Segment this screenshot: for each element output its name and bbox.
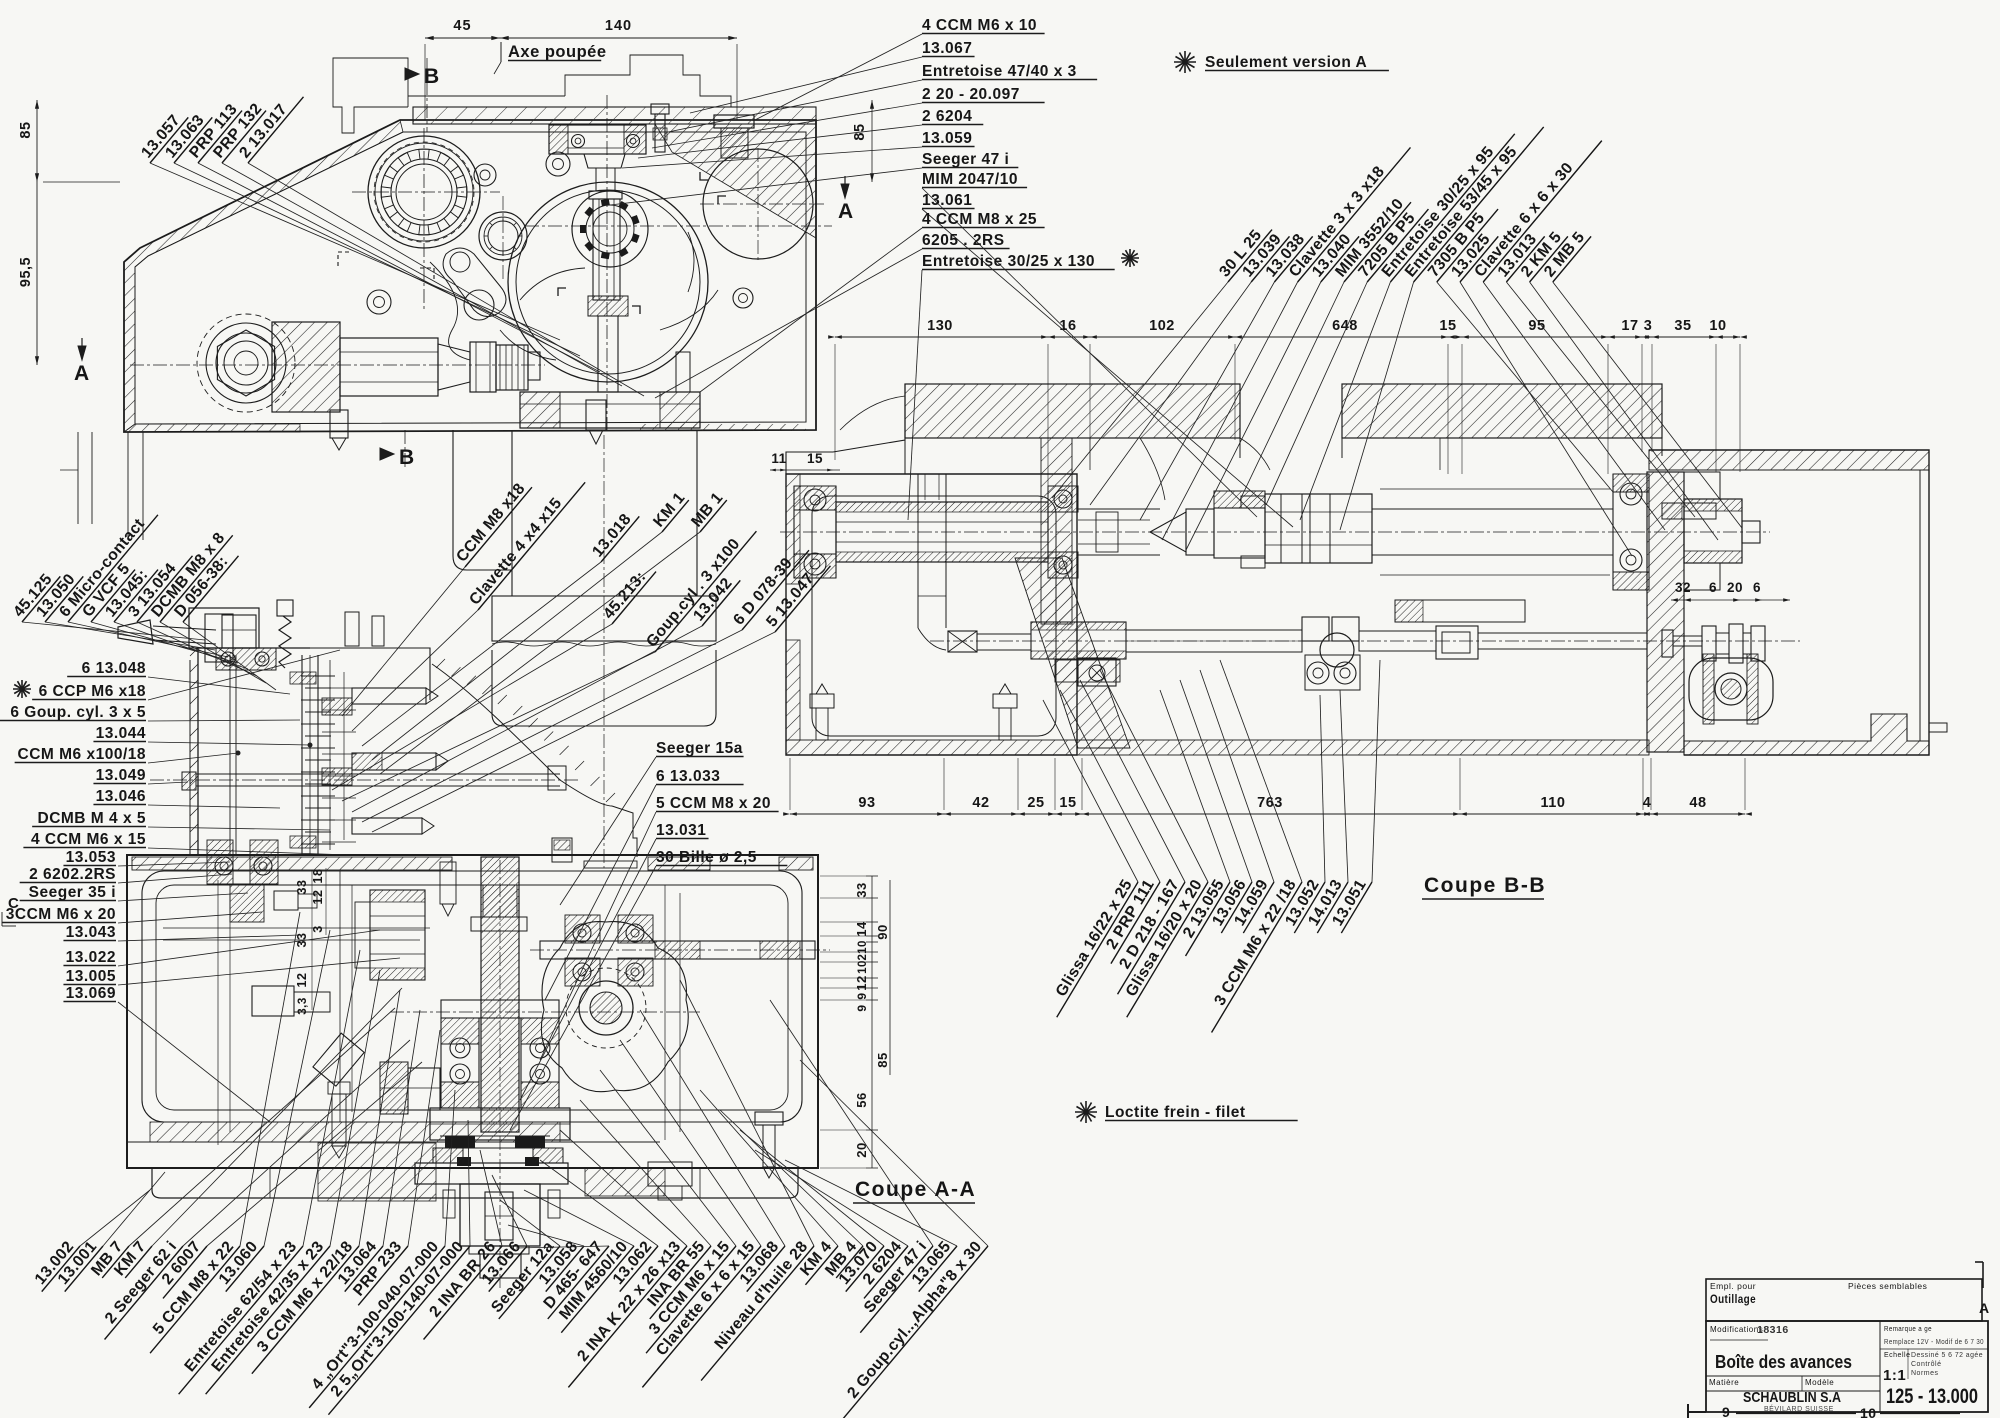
svg-text:B: B bbox=[424, 65, 440, 88]
svg-text:9: 9 bbox=[855, 1004, 869, 1011]
svg-text:13.059: 13.059 bbox=[922, 130, 972, 147]
svg-text:13.046: 13.046 bbox=[96, 788, 146, 805]
svg-text:56: 56 bbox=[854, 1092, 869, 1107]
svg-text:20: 20 bbox=[854, 1142, 869, 1157]
svg-text:33: 33 bbox=[854, 882, 869, 897]
svg-text:Seeger 35 i: Seeger 35 i bbox=[29, 884, 116, 901]
svg-text:Axe poupée: Axe poupée bbox=[508, 43, 607, 61]
svg-text:A: A bbox=[1979, 1300, 1990, 1316]
svg-text:125 - 13.000: 125 - 13.000 bbox=[1886, 1385, 1978, 1408]
svg-text:4: 4 bbox=[1643, 795, 1652, 811]
svg-text:2: 2 bbox=[857, 954, 869, 961]
svg-text:10: 10 bbox=[1709, 318, 1726, 334]
svg-text:20: 20 bbox=[1727, 580, 1743, 595]
svg-text:MIM 2047/10: MIM 2047/10 bbox=[922, 171, 1018, 188]
svg-text:A: A bbox=[838, 200, 854, 223]
svg-text:2 20 - 20.097: 2 20 - 20.097 bbox=[922, 86, 1020, 103]
svg-text:13.067: 13.067 bbox=[922, 40, 972, 57]
svg-text:Contrôlé: Contrôlé bbox=[1911, 1361, 1941, 1368]
svg-text:10: 10 bbox=[1860, 1405, 1877, 1418]
svg-text:25: 25 bbox=[1027, 795, 1044, 811]
svg-text:13.053: 13.053 bbox=[66, 849, 116, 866]
svg-text:5 CCM M8 x 20: 5 CCM M8 x 20 bbox=[656, 795, 771, 812]
svg-text:Coupe B-B: Coupe B-B bbox=[1424, 874, 1546, 897]
svg-text:Outillage: Outillage bbox=[1710, 1292, 1756, 1306]
svg-text:BÉVILARD SUISSE: BÉVILARD SUISSE bbox=[1764, 1404, 1834, 1413]
svg-text:4 CCM M8 x 25: 4 CCM M8 x 25 bbox=[922, 211, 1037, 228]
svg-text:B: B bbox=[399, 446, 415, 469]
svg-text:DCMB M 4 x 5: DCMB M 4 x 5 bbox=[38, 810, 147, 827]
svg-text:6 CCP M6 x18: 6 CCP M6 x18 bbox=[39, 683, 146, 700]
svg-text:6205 . 2RS: 6205 . 2RS bbox=[922, 232, 1005, 249]
svg-text:Normes: Normes bbox=[1911, 1370, 1939, 1377]
svg-text:110: 110 bbox=[1541, 795, 1566, 811]
svg-text:6 13.033: 6 13.033 bbox=[656, 768, 720, 785]
svg-text:Loctite frein - filet: Loctite frein - filet bbox=[1105, 1104, 1246, 1121]
svg-text:48: 48 bbox=[1689, 795, 1706, 811]
svg-text:18316: 18316 bbox=[1757, 1324, 1789, 1336]
svg-text:93: 93 bbox=[858, 795, 875, 811]
svg-text:85: 85 bbox=[18, 121, 34, 138]
svg-text:6: 6 bbox=[1753, 580, 1761, 595]
svg-text:2 6202.2RS: 2 6202.2RS bbox=[29, 866, 116, 883]
svg-text:Entretoise 30/25 x 130: Entretoise 30/25 x 130 bbox=[922, 253, 1095, 270]
svg-text:30 Bille ø 2,5: 30 Bille ø 2,5 bbox=[656, 849, 757, 866]
svg-text:6 Goup. cyl. 3 x 5: 6 Goup. cyl. 3 x 5 bbox=[10, 704, 146, 721]
svg-text:35: 35 bbox=[1674, 318, 1691, 334]
svg-text:Boîte des avances: Boîte des avances bbox=[1715, 1352, 1852, 1372]
svg-text:12: 12 bbox=[854, 975, 869, 990]
svg-text:3,3: 3,3 bbox=[297, 997, 309, 1015]
svg-text:15: 15 bbox=[807, 451, 823, 466]
svg-text:6: 6 bbox=[1709, 580, 1717, 595]
svg-text:13.061: 13.061 bbox=[922, 192, 972, 209]
svg-text:Seeger 15a: Seeger 15a bbox=[656, 740, 743, 757]
svg-text:763: 763 bbox=[1257, 795, 1283, 811]
svg-text:SCHAUBLIN S.A: SCHAUBLIN S.A bbox=[1743, 1389, 1841, 1406]
svg-text:6 13.048: 6 13.048 bbox=[82, 660, 146, 677]
svg-text:13.022: 13.022 bbox=[66, 949, 116, 966]
svg-text:CCM M6 x100/18: CCM M6 x100/18 bbox=[18, 746, 146, 763]
svg-text:13.069: 13.069 bbox=[66, 985, 116, 1002]
svg-text:102: 102 bbox=[1149, 318, 1175, 334]
svg-text:A: A bbox=[74, 362, 90, 385]
svg-text:18: 18 bbox=[311, 869, 325, 884]
svg-text:Coupe A-A: Coupe A-A bbox=[855, 1178, 976, 1201]
svg-text:3CCM M6 x 20: 3CCM M6 x 20 bbox=[6, 906, 116, 923]
svg-text:13.044: 13.044 bbox=[96, 725, 146, 742]
svg-text:Modèle: Modèle bbox=[1805, 1378, 1834, 1387]
svg-text:10: 10 bbox=[857, 960, 869, 974]
svg-text:4 CCM M6 x 10: 4 CCM M6 x 10 bbox=[922, 17, 1037, 34]
svg-text:Seeger 47 i: Seeger 47 i bbox=[922, 151, 1009, 168]
svg-text:3: 3 bbox=[311, 925, 325, 932]
svg-text:85: 85 bbox=[875, 1052, 890, 1067]
svg-text:90: 90 bbox=[875, 924, 890, 939]
svg-text:12: 12 bbox=[311, 890, 325, 905]
svg-text:95,5: 95,5 bbox=[18, 257, 34, 287]
svg-text:4 CCM M6 x 15: 4 CCM M6 x 15 bbox=[31, 831, 146, 848]
svg-text:130: 130 bbox=[927, 318, 953, 334]
svg-text:13.005: 13.005 bbox=[66, 968, 116, 985]
svg-text:Modifications: Modifications bbox=[1710, 1325, 1763, 1334]
svg-text:15: 15 bbox=[1439, 318, 1456, 334]
svg-text:Dessiné 5 6 72 agée: Dessiné 5 6 72 agée bbox=[1911, 1350, 1983, 1359]
svg-text:1:1: 1:1 bbox=[1883, 1367, 1906, 1384]
svg-text:9: 9 bbox=[855, 992, 869, 999]
svg-text:13.031: 13.031 bbox=[656, 822, 706, 839]
svg-text:Entretoise 47/40 x 3: Entretoise 47/40 x 3 bbox=[922, 63, 1077, 80]
svg-text:15: 15 bbox=[1059, 795, 1076, 811]
svg-text:32: 32 bbox=[1675, 580, 1691, 595]
svg-text:42: 42 bbox=[972, 795, 989, 811]
svg-text:9: 9 bbox=[1722, 1404, 1730, 1418]
svg-text:14: 14 bbox=[854, 921, 869, 937]
svg-text:13.049: 13.049 bbox=[96, 767, 146, 784]
svg-text:Seulement version A: Seulement version A bbox=[1205, 54, 1367, 71]
svg-text:11: 11 bbox=[771, 451, 786, 466]
svg-text:13.043: 13.043 bbox=[66, 924, 116, 941]
svg-text:2 6204: 2 6204 bbox=[922, 108, 972, 125]
svg-text:Empl. pour: Empl. pour bbox=[1710, 1281, 1756, 1291]
svg-text:33: 33 bbox=[295, 880, 309, 895]
svg-text:45: 45 bbox=[453, 18, 471, 34]
svg-text:12: 12 bbox=[295, 973, 309, 988]
svg-text:Remplace 12V - Modif de 6 7: Remplace 12V - Modif de 6 7 30 bbox=[1884, 1337, 1984, 1346]
svg-text:Matière: Matière bbox=[1709, 1378, 1739, 1387]
svg-text:Pièces semblables: Pièces semblables bbox=[1848, 1281, 1927, 1291]
svg-text:140: 140 bbox=[605, 18, 632, 34]
svg-text:Remarque a ge: Remarque a ge bbox=[1884, 1324, 1932, 1333]
svg-text:Echelle: Echelle bbox=[1884, 1352, 1910, 1359]
svg-text:10: 10 bbox=[857, 940, 869, 954]
svg-text:3: 3 bbox=[1644, 318, 1653, 334]
svg-text:17: 17 bbox=[1621, 318, 1638, 334]
